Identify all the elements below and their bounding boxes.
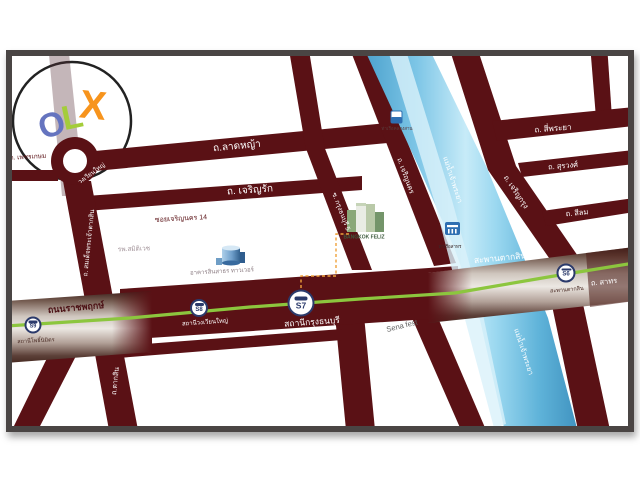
khlong-san-pier-icon [391,111,402,123]
road-phetkasem [6,170,58,181]
station-code-s7: S7 [296,301,306,310]
road-southwest-ramp [12,352,78,430]
poi-label-bangkok-feliz: BANGKOK FELIZ [343,236,384,241]
station-code-s6: S6 [562,272,569,278]
map-frame: O L X ถ. เพชรเกษม วงเวียนใหญ่ ถ.ลาดหญ้า … [6,50,634,432]
map-card: O L X ถ. เพชรเกษม วงเวียนใหญ่ ถ.ลาดหญ้า … [0,0,640,480]
station-marker-s6: S6 [557,264,576,283]
road-label-silom: ถ. สีลม [565,208,588,217]
station-marker-s8: S8 [190,299,208,317]
station-marker-s9: S9 [25,317,42,334]
map-stage: O L X ถ. เพชรเกษม วงเวียนใหญ่ ถ.ลาดหญ้า … [6,50,634,432]
station-code-s8: S8 [195,307,202,313]
road-top-right-stub [590,50,612,118]
sathorn-pier-icon [445,222,460,235]
bangkok-feliz-building [347,203,384,232]
band-fade-west [112,291,152,356]
poi-label-pier-khlong-san: ท่าเรือคลองสาน [381,127,412,132]
olx-logo: O L X [35,91,109,145]
sinsathorn-tower-icon [216,246,245,266]
station-code-s9: S9 [30,324,37,330]
poi-label-pier-sathorn: ท่าเรือสาทร [439,245,462,250]
station-marker-s7: S7 [288,290,315,317]
poi-label-hospital: รพ.สมิติเวช [118,246,151,254]
roundabout-center [63,149,87,173]
olx-letter-x: X [78,82,107,129]
